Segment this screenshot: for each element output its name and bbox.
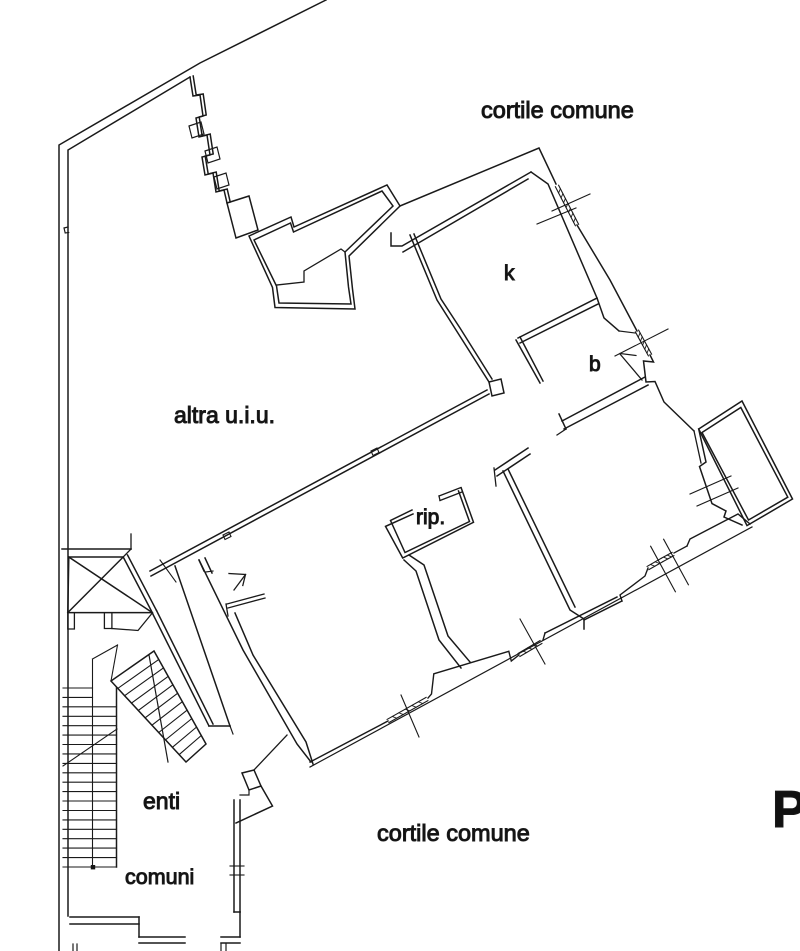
svg-text:b: b [589,353,601,376]
svg-text:altra u.i.u.: altra u.i.u. [174,402,275,428]
svg-text:cortile comune: cortile comune [377,820,530,846]
svg-text:cortile comune: cortile comune [481,97,634,123]
svg-text:enti: enti [143,788,180,814]
svg-text:P: P [772,781,800,839]
svg-text:comuni: comuni [125,865,194,889]
svg-text:k: k [504,262,515,285]
svg-text:rip.: rip. [416,506,445,529]
